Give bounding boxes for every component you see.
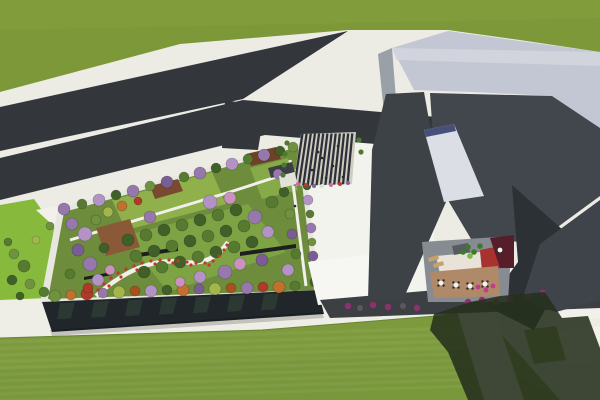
flower-red [225, 243, 228, 246]
shrub-magenta [491, 284, 496, 289]
tree [266, 196, 278, 208]
flower-red [158, 258, 161, 261]
tree [127, 185, 139, 197]
tree [16, 292, 24, 300]
tree [306, 223, 316, 233]
plaza-hedge [356, 137, 361, 142]
shrub-purple [345, 303, 351, 309]
tree [103, 207, 113, 217]
tree [248, 210, 262, 224]
tree [72, 244, 84, 256]
tree [246, 236, 258, 248]
road-crossing [222, 100, 265, 150]
flower-red [102, 282, 105, 285]
plaza-hedge [284, 140, 289, 145]
tree [83, 283, 93, 293]
tree [145, 181, 155, 191]
pedestrian [325, 177, 328, 180]
tree [282, 264, 294, 276]
pedestrian [342, 176, 345, 179]
flower-red [222, 248, 225, 251]
chair [466, 287, 468, 289]
tree [18, 260, 30, 272]
tree [156, 261, 168, 273]
potted-plant [465, 244, 471, 250]
tree [130, 250, 142, 262]
tree [228, 241, 240, 253]
pedestrians [294, 205, 297, 208]
shrub-gray [357, 305, 363, 311]
tree [9, 249, 19, 259]
chair [437, 284, 439, 286]
tree [66, 218, 78, 230]
tree [308, 238, 316, 246]
tree [91, 215, 101, 225]
tree [241, 282, 253, 294]
chair [466, 282, 468, 284]
chair [471, 287, 473, 289]
tree [7, 275, 17, 285]
shrub-purple [414, 305, 420, 311]
shrub-purple [370, 302, 376, 308]
tree [111, 190, 121, 200]
tree [194, 214, 206, 226]
tree [176, 219, 188, 231]
tree [303, 195, 313, 205]
tree [58, 203, 70, 215]
courtyard-cafe [422, 235, 514, 302]
tree [224, 192, 236, 204]
plaza-hedge [358, 149, 363, 154]
table [483, 282, 488, 287]
pedestrian [337, 145, 340, 148]
plaza-hedge [281, 162, 286, 167]
tree [291, 249, 301, 259]
tree [78, 227, 92, 241]
pedestrian [321, 157, 324, 160]
tree [32, 236, 40, 244]
tree [25, 279, 35, 289]
tree [194, 271, 206, 283]
tree [49, 290, 61, 302]
flower-red [176, 259, 179, 262]
tree [226, 158, 238, 170]
tree [285, 209, 295, 219]
pedestrian [332, 165, 335, 168]
tree [122, 234, 134, 246]
flower-red [107, 284, 110, 287]
tree [145, 285, 157, 297]
tree [130, 286, 140, 296]
shrub-purple [385, 304, 391, 310]
tree [306, 210, 314, 218]
plaza-flower [296, 182, 300, 186]
chair [496, 246, 498, 248]
tree [209, 283, 221, 295]
chair [437, 279, 439, 281]
tree [218, 265, 232, 279]
flower-red [96, 288, 99, 291]
tree [287, 229, 297, 239]
flower-red [189, 263, 192, 266]
plaza-flower [312, 184, 316, 188]
tree [144, 211, 156, 223]
tree [192, 251, 204, 263]
chair [471, 282, 473, 284]
potted-plant [471, 249, 477, 255]
flower-red [149, 259, 152, 262]
table [498, 248, 503, 253]
chair [496, 251, 498, 253]
flower-red [135, 268, 138, 271]
tree [92, 274, 104, 286]
tree [211, 163, 221, 173]
chair [486, 285, 488, 287]
chair [501, 251, 503, 253]
tree [194, 167, 206, 179]
tree [230, 204, 242, 216]
shrub-magenta [476, 285, 481, 290]
flower-red [124, 267, 127, 270]
flower-red [194, 261, 197, 264]
table [439, 281, 444, 286]
tree [174, 256, 186, 268]
tree [290, 281, 300, 291]
tree [258, 149, 270, 161]
tree [203, 195, 217, 209]
chair [457, 286, 459, 288]
plaza-flower [346, 181, 350, 185]
tree [166, 240, 178, 252]
tree [262, 226, 274, 238]
tree [256, 254, 268, 266]
tree [93, 194, 105, 206]
tree [279, 187, 289, 197]
tree [212, 209, 224, 221]
plaza-flower [320, 184, 324, 188]
flower-red [140, 261, 143, 264]
flower-red [203, 261, 206, 264]
chair [442, 284, 444, 286]
pedestrian [317, 151, 320, 154]
plaza-flower [329, 183, 333, 187]
tree [83, 257, 97, 271]
flower-red [185, 260, 188, 263]
tree [308, 251, 318, 261]
potted-plant [467, 253, 473, 259]
flower-red [119, 275, 122, 278]
tree [226, 283, 236, 293]
chair [481, 285, 483, 287]
tree [105, 265, 115, 275]
tree [243, 154, 253, 164]
tree [158, 224, 170, 236]
flower-red [153, 262, 156, 265]
tree [117, 201, 127, 211]
chair [486, 280, 488, 282]
tree [77, 199, 87, 209]
pedestrian [311, 169, 314, 172]
flower-red [171, 261, 174, 264]
chair [442, 279, 444, 281]
plaza-hedge [282, 151, 287, 156]
plaza-flower [338, 182, 342, 186]
shrub-gray [400, 303, 406, 309]
chair [457, 281, 459, 283]
pedestrian [294, 205, 297, 208]
potted-plant [477, 243, 483, 249]
tree [238, 220, 250, 232]
tree [4, 238, 12, 246]
tree [179, 172, 189, 182]
tree [113, 286, 125, 298]
chair [501, 246, 503, 248]
tree [202, 230, 214, 242]
tree [66, 290, 76, 300]
table [468, 284, 473, 289]
tree [258, 282, 268, 292]
plaza-flower [304, 183, 308, 187]
table [454, 283, 459, 288]
flower-red [132, 264, 135, 267]
tree [134, 197, 142, 205]
tree [140, 229, 152, 241]
flower-red [167, 258, 170, 261]
tree [39, 287, 49, 297]
tree [99, 243, 109, 253]
tree [65, 269, 75, 279]
shrub-magenta [484, 288, 489, 293]
tree [234, 258, 246, 270]
chair [452, 286, 454, 288]
tree [184, 235, 196, 247]
chair [452, 281, 454, 283]
tree [148, 245, 160, 257]
chair [481, 280, 483, 282]
flower-red [217, 254, 220, 257]
flower-red [116, 271, 119, 274]
tree [194, 284, 204, 294]
tree [46, 222, 54, 230]
tree [138, 266, 150, 278]
flower-red [207, 263, 210, 266]
flower-red [211, 259, 214, 262]
tree [220, 225, 232, 237]
plaza-hedge [280, 172, 285, 177]
flower-red [109, 276, 112, 279]
render-canvas [0, 0, 600, 400]
tree [162, 285, 172, 295]
tree [273, 281, 285, 293]
tree [175, 277, 185, 287]
tree [161, 176, 173, 188]
potted-plant [460, 249, 466, 255]
